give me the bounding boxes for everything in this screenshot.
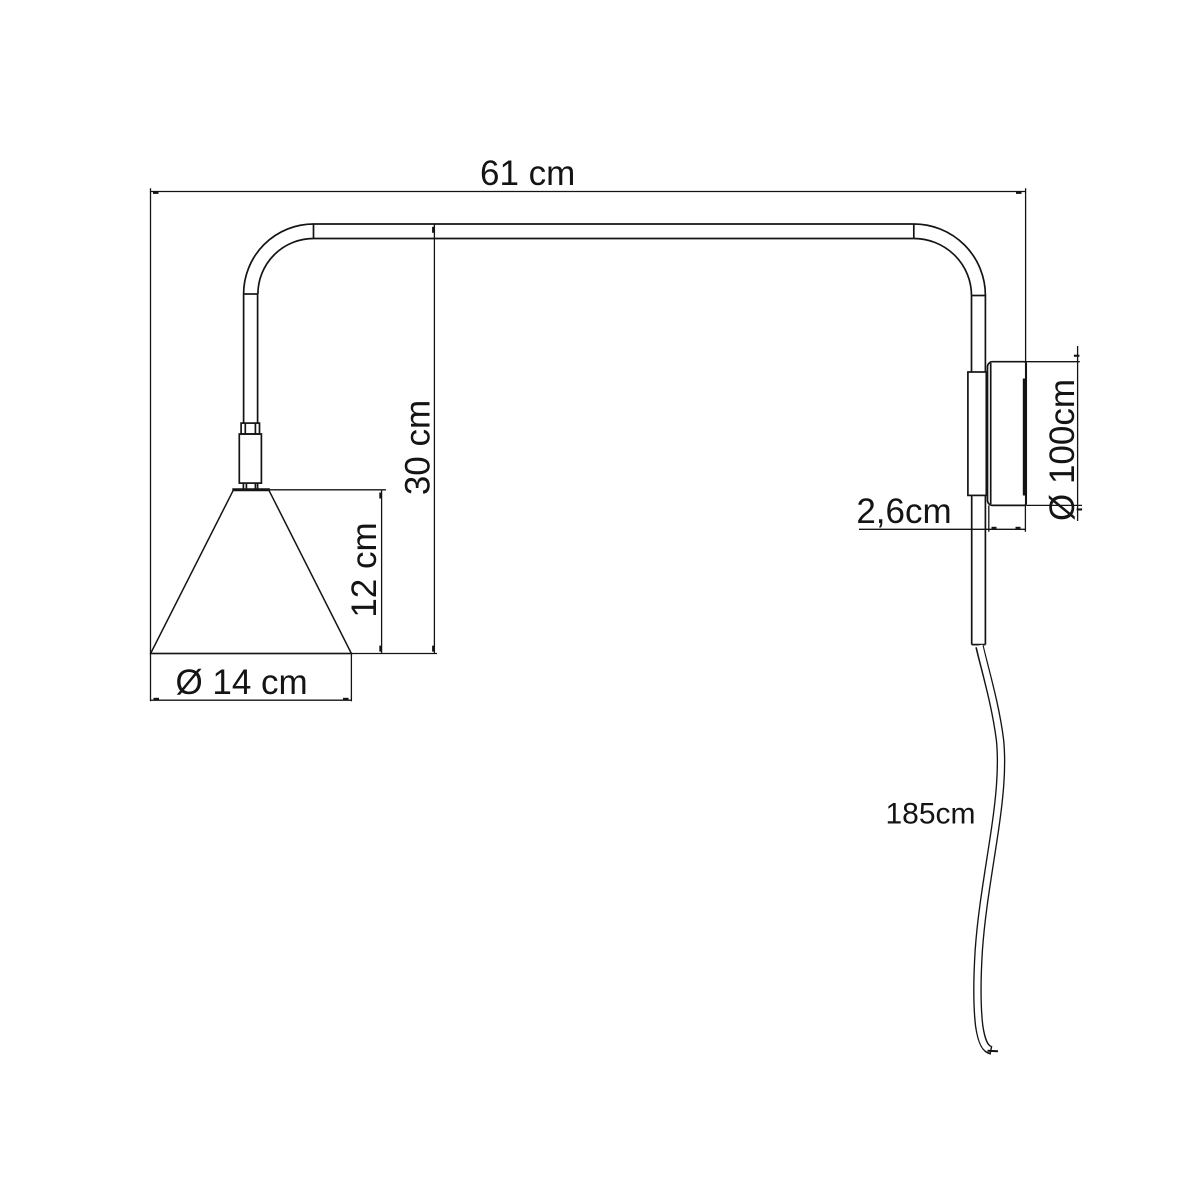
- svg-text:12 cm: 12 cm: [345, 522, 384, 617]
- svg-text:30 cm: 30 cm: [398, 400, 437, 495]
- svg-text:2,6cm: 2,6cm: [856, 492, 951, 531]
- svg-text:Ø 100cm: Ø 100cm: [1043, 379, 1082, 521]
- svg-text:61 cm: 61 cm: [480, 154, 575, 193]
- svg-text:Ø 14 cm: Ø 14 cm: [175, 663, 307, 702]
- svg-text:185cm: 185cm: [885, 798, 975, 831]
